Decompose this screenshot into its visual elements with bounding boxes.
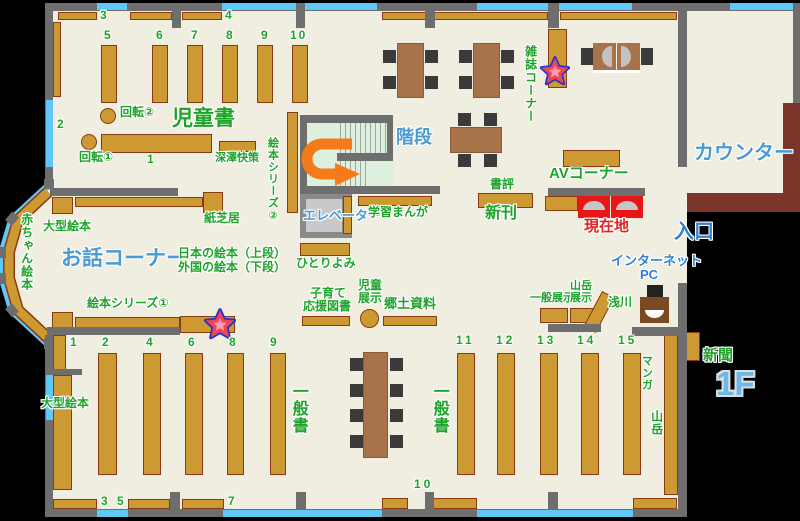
chair: [390, 435, 403, 448]
window: [559, 3, 632, 10]
shelf-number: 9: [261, 29, 268, 42]
bookshelf: [53, 22, 61, 97]
pc-desk: [640, 297, 669, 323]
wall-below-exhibit: [548, 324, 601, 332]
chair: [383, 50, 396, 63]
bookshelf: [227, 353, 244, 475]
wall-story-corner-bottom: [47, 327, 180, 335]
magazine-wall-shelf: [560, 12, 677, 20]
chair: [501, 76, 514, 89]
shelf-number: 14: [577, 334, 596, 347]
shelf-number: 6: [188, 336, 195, 349]
pillar: [296, 3, 305, 28]
mountain-books-shelf: [664, 333, 678, 495]
wall-left-lower: [45, 335, 53, 517]
shelf-number: 1: [147, 153, 154, 166]
wall-divider-small: [53, 369, 82, 375]
shelf-number: 10: [290, 29, 307, 42]
bookshelf: [58, 12, 97, 20]
bookshelf: [222, 45, 238, 103]
shelf-number: 3: [100, 9, 107, 22]
shelf-number: 15: [618, 334, 637, 347]
parenting-books-shelf: [302, 316, 350, 326]
pc-monitor: [647, 285, 663, 297]
wall-right-counter-room: [793, 3, 800, 106]
chair: [484, 154, 497, 167]
bookshelf: [101, 45, 117, 103]
newspaper-rack: [685, 332, 700, 361]
pillar: [425, 492, 434, 517]
av-seat-back: [616, 201, 638, 210]
chair: [458, 113, 471, 126]
general-books-label: 一般書: [289, 383, 306, 438]
bookshelf: [128, 499, 170, 509]
bookshelf: [382, 498, 408, 509]
chair: [459, 50, 472, 63]
pc-chair: [645, 310, 664, 318]
chair: [390, 384, 403, 397]
sofa-seat: [593, 43, 616, 70]
floor-label: 1F: [716, 367, 755, 402]
chair: [383, 76, 396, 89]
av-seat: [611, 196, 643, 218]
av-seat: [578, 196, 610, 218]
large-picture-books-label: 大型絵本: [43, 220, 91, 233]
shelf-number: 4: [146, 336, 153, 349]
chair: [458, 154, 471, 167]
pc-label: PC: [640, 268, 658, 282]
sofa-side-table: [581, 48, 593, 65]
rotate1-label: 回転①: [79, 151, 113, 164]
bookshelf: [182, 12, 222, 20]
stairs-label: 階段: [396, 128, 432, 147]
chair: [425, 50, 438, 63]
parenting-label-line1: 子育て: [310, 287, 346, 300]
shelf-number: 1: [70, 336, 77, 349]
chair: [484, 113, 497, 126]
sofa-seat: [617, 43, 640, 70]
study-manga-label: 学習まんが: [368, 206, 428, 219]
general-exhibit-label: 一般展示: [530, 293, 574, 305]
kamishibai-shelf-end: [203, 192, 223, 213]
shelf-number: 11: [456, 334, 475, 347]
rotate2-label: 回転②: [120, 106, 154, 119]
chair: [350, 409, 363, 422]
mountain-exhibit-label-line1: 山岳: [570, 281, 592, 293]
bookshelf: [143, 353, 161, 475]
pillar: [172, 3, 181, 28]
reading-table: [397, 43, 424, 98]
hitoriyomi-label: ひとりよみ: [296, 257, 356, 270]
wall-current-location: [548, 188, 645, 196]
japanese-picture-books-label: 日本の絵本（上段）: [178, 247, 286, 260]
bookshelf: [182, 499, 224, 509]
chair: [350, 358, 363, 371]
service-counter-front: [687, 193, 800, 212]
bookshelf: [101, 134, 212, 153]
chair: [350, 384, 363, 397]
local-materials-label: 郷土資料: [384, 297, 436, 311]
shelf-number: 8: [226, 29, 233, 42]
reading-table: [450, 127, 502, 153]
general-books-label: 一般書: [430, 383, 447, 438]
current-location-label: 現在地: [584, 219, 629, 235]
picture-book-series1-label: 絵本シリーズ①: [87, 297, 169, 310]
local-materials-shelf: [383, 316, 437, 326]
window: [477, 3, 548, 10]
chair: [390, 409, 403, 422]
rotating-rack-1: [81, 134, 97, 150]
bookshelf: [98, 353, 117, 475]
shelf-number: 2: [102, 336, 109, 349]
bookshelf: [185, 353, 203, 475]
sofa-cushion: [621, 46, 631, 67]
bookshelf: [187, 45, 203, 103]
bookshelf: [53, 335, 66, 371]
bookshelf: [581, 353, 599, 475]
mountain-exhibit-label-line2: 展示: [570, 293, 592, 305]
bookshelf: [53, 375, 72, 490]
window: [46, 100, 53, 167]
shelf-number: 2: [57, 118, 64, 131]
bookshelf: [292, 45, 308, 103]
bookshelf: [457, 353, 475, 475]
sofa-cushion: [602, 46, 612, 67]
children-exhibit-label-line1: 児童: [358, 279, 382, 292]
kamishibai-label: 紙芝居: [204, 212, 240, 225]
current-location-shelf: [545, 196, 578, 211]
magazine-wall-shelf: [382, 12, 548, 20]
pillar: [425, 3, 435, 28]
bookshelf: [623, 353, 641, 475]
picture-book-series2-shelf: [287, 112, 298, 213]
book-review-label: 書評: [490, 178, 514, 191]
sofa-side-table: [641, 48, 653, 65]
children-exhibit-rack: [360, 309, 379, 328]
picture-book-series2-label: 絵本シリーズ②: [266, 137, 278, 222]
wall-south-of-stairs: [300, 186, 440, 194]
window: [477, 510, 633, 517]
chair: [501, 50, 514, 63]
wall-below-pc: [632, 327, 687, 336]
bookshelf: [270, 353, 286, 475]
shelf-number: 13: [537, 334, 556, 347]
large-picture-books-label: 大型絵本: [41, 397, 89, 410]
bookshelf: [540, 353, 558, 475]
pillar: [170, 492, 180, 517]
av-seat-back: [583, 201, 605, 210]
internet-label: インターネット: [611, 254, 702, 268]
bookshelf: [497, 353, 515, 475]
stairs-direction-arrow: [300, 130, 370, 192]
shelf-number: 10: [414, 478, 433, 491]
shelf-number: 6: [156, 29, 163, 42]
star-marker: [540, 56, 570, 86]
baby-picture-books-label: 赤ちゃん絵本: [20, 213, 33, 295]
fukasawa-label: 深澤快策: [215, 153, 259, 165]
hitoriyomi-shelf: [300, 243, 350, 256]
wall-right-lower: [678, 283, 687, 517]
shelf-number: 9: [270, 336, 277, 349]
chair: [390, 358, 403, 371]
library-floor-map: 3 4 5 6 7 8 9 10 2 1 回転② 回転① 児童書 深澤快策 絵本…: [0, 0, 800, 521]
bookshelf: [633, 498, 677, 509]
shelf-number: 5: [117, 495, 124, 508]
window: [730, 3, 793, 10]
window: [222, 3, 296, 10]
entrance-label: 入口: [674, 222, 714, 243]
wall-story-corner-top: [50, 188, 178, 196]
bookshelf: [257, 45, 273, 103]
asakawa-label: 浅川: [608, 296, 632, 309]
shelf-number: 8: [229, 336, 236, 349]
chair: [350, 435, 363, 448]
reading-table-large: [363, 352, 388, 458]
rotating-rack-2: [100, 108, 116, 124]
shelf-number: 4: [225, 9, 232, 22]
children-exhibit-label-line2: 展示: [358, 292, 382, 305]
parenting-label-line2: 応援図書: [303, 300, 351, 313]
reading-table: [473, 43, 500, 98]
new-books-label: 新刊: [485, 206, 517, 223]
shelf-number: 7: [191, 29, 198, 42]
window: [305, 3, 377, 10]
fukasawa-shelf: [219, 141, 256, 152]
foreign-picture-books-label: 外国の絵本（下段）: [178, 261, 286, 274]
manga-label: マンガ: [640, 355, 652, 400]
window: [97, 510, 128, 517]
bookshelf: [130, 12, 172, 20]
av-corner-label: AVコーナー: [549, 166, 629, 182]
shelf-number: 3: [101, 495, 108, 508]
shelf-number: 7: [228, 495, 235, 508]
window: [223, 510, 382, 517]
story-corner-title: お話コーナー: [61, 248, 187, 270]
bookshelf: [152, 45, 168, 103]
wall-counter-partition: [678, 3, 687, 167]
large-picture-book-shelf: [52, 197, 73, 214]
magazine-corner-label: 雑誌コーナー: [524, 45, 537, 125]
bookshelf: [433, 498, 477, 509]
pillar: [548, 3, 559, 28]
bookshelf: [53, 499, 97, 509]
shelf-number: 12: [496, 334, 515, 347]
children-books-area-title: 児童書: [172, 108, 235, 130]
shelf-number: 5: [104, 29, 111, 42]
mountain-label: 山岳: [650, 410, 663, 440]
kamishibai-shelf: [75, 197, 203, 207]
counter-label: カウンター: [694, 143, 794, 164]
sofa-base: [593, 70, 640, 73]
general-exhibit-shelf: [540, 308, 568, 323]
newspaper-label: 新聞: [703, 348, 733, 364]
chair: [425, 76, 438, 89]
chair: [459, 76, 472, 89]
stairs-wall-top: [300, 115, 393, 123]
